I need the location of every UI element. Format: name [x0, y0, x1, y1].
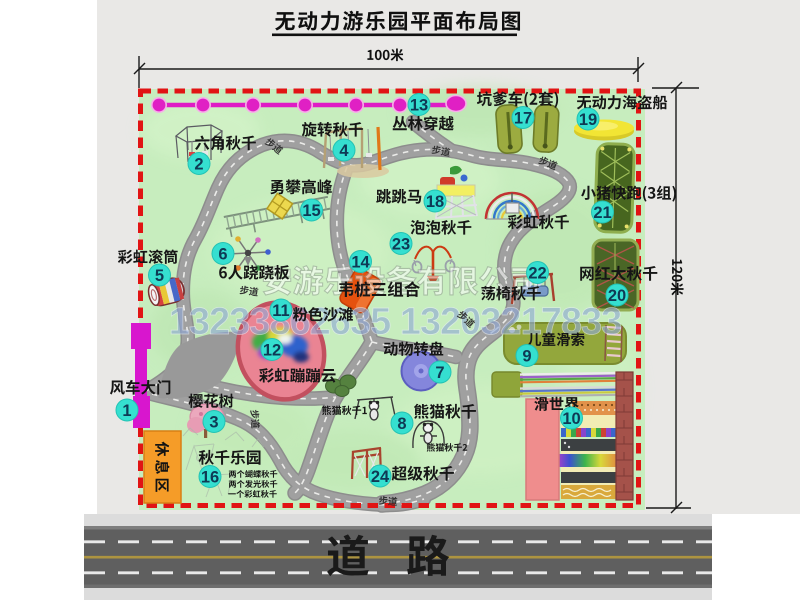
svg-text:16: 16	[201, 468, 219, 486]
svg-text:1: 1	[122, 402, 131, 420]
svg-text:24: 24	[371, 468, 390, 486]
svg-text:7: 7	[435, 364, 444, 382]
svg-text:11: 11	[272, 302, 289, 320]
svg-text:15: 15	[302, 202, 320, 220]
svg-text:10: 10	[562, 410, 580, 428]
svg-text:2: 2	[194, 155, 203, 173]
svg-text:3: 3	[209, 413, 218, 431]
svg-text:13: 13	[410, 96, 428, 114]
svg-text:8: 8	[397, 415, 406, 433]
svg-text:14: 14	[351, 253, 370, 271]
svg-text:20: 20	[608, 287, 626, 305]
svg-text:17: 17	[514, 109, 532, 127]
svg-text:5: 5	[155, 267, 164, 285]
svg-text:12: 12	[263, 341, 281, 359]
svg-text:9: 9	[522, 347, 531, 365]
svg-text:6: 6	[218, 245, 227, 263]
svg-text:23: 23	[392, 235, 410, 253]
svg-text:19: 19	[579, 111, 597, 129]
svg-text:18: 18	[426, 193, 444, 211]
svg-text:4: 4	[339, 142, 349, 160]
svg-text:21: 21	[593, 204, 611, 222]
svg-text:22: 22	[528, 264, 546, 282]
